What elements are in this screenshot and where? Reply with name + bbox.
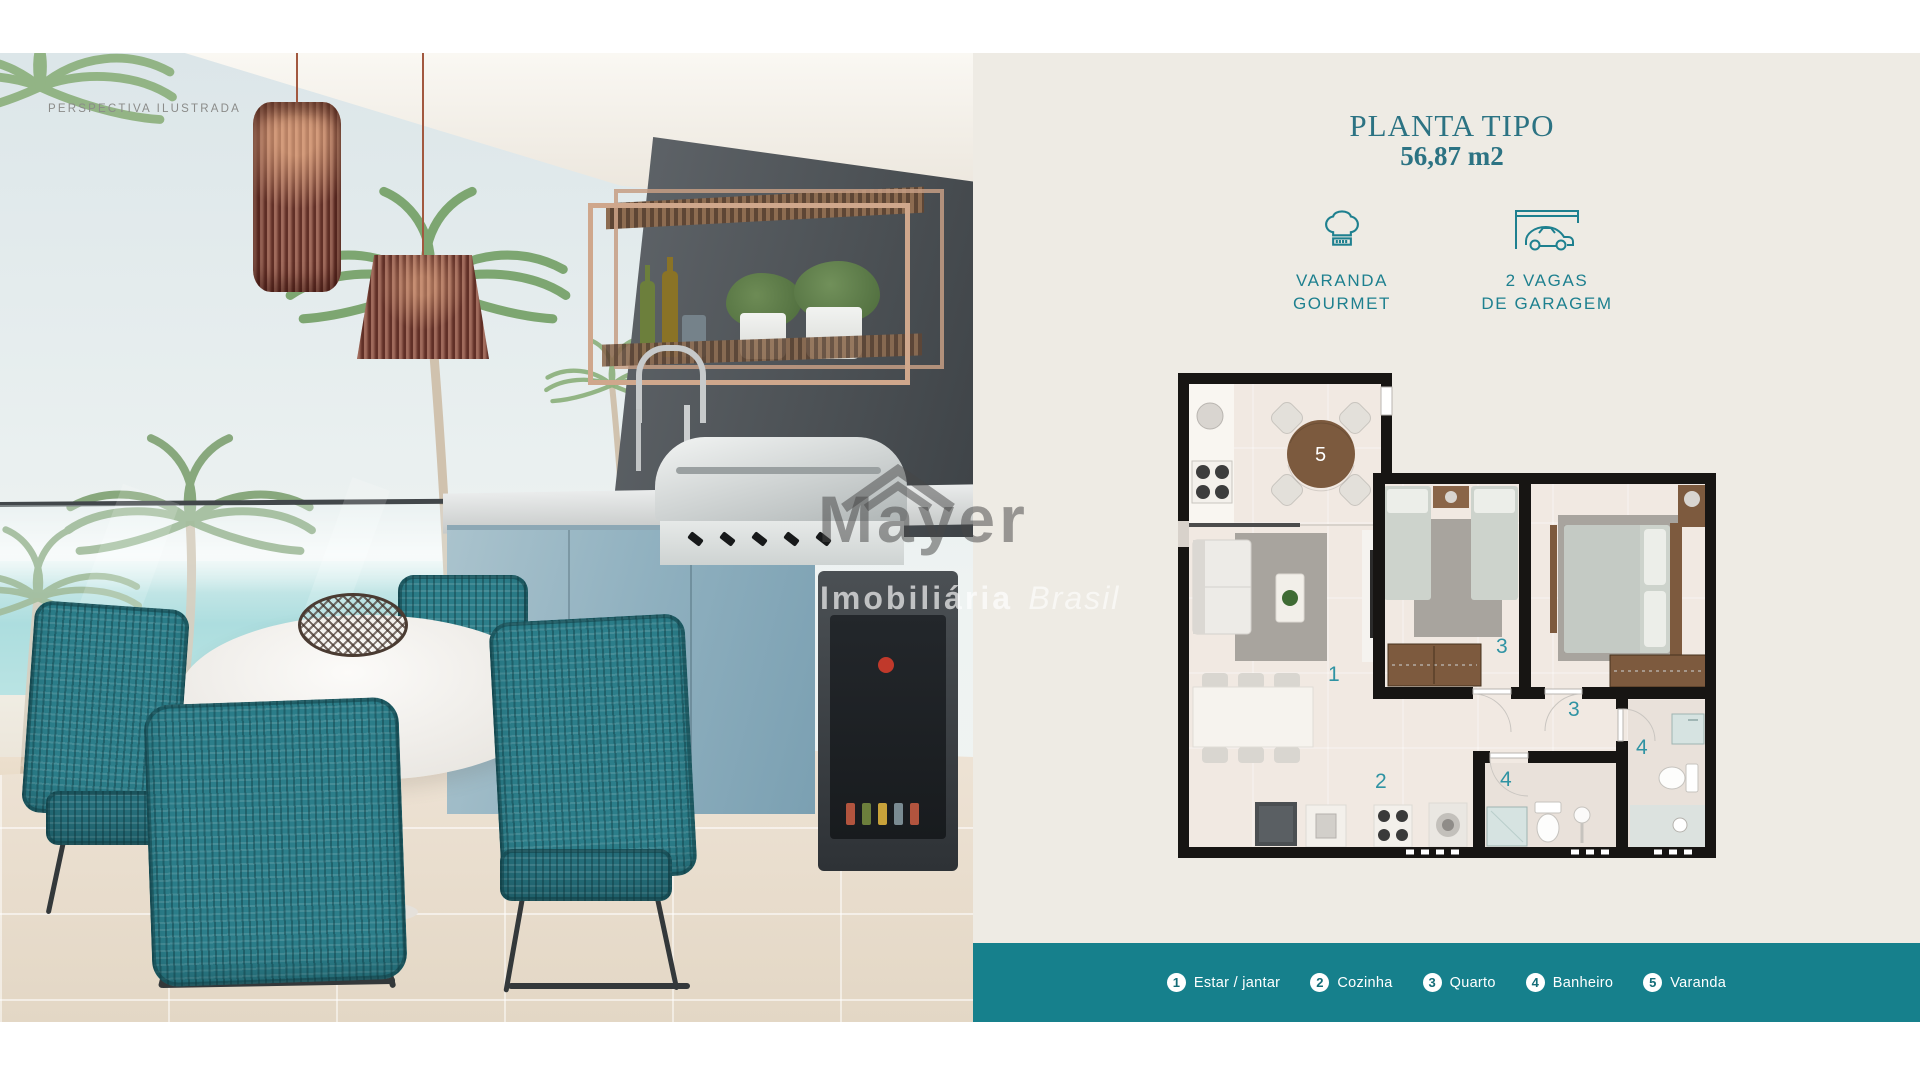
chef-hat-icon	[1316, 203, 1368, 253]
amenity-label: VARANDA GOURMET	[1252, 270, 1432, 316]
legend-label: Cozinha	[1337, 975, 1392, 991]
photo-caption: PERSPECTIVA ILUSTRADA	[48, 103, 241, 115]
vanity	[1672, 714, 1704, 744]
watermark-line2: Imobiliária	[820, 580, 1013, 616]
legend-number-badge: 4	[1526, 973, 1545, 992]
legend-item: 3 Quarto	[1423, 973, 1496, 992]
legend-number-badge: 1	[1167, 973, 1186, 992]
dining-chair	[143, 697, 408, 988]
dining-table	[1193, 687, 1313, 747]
amenity-label-line: VARANDA	[1252, 270, 1432, 293]
plan-outside	[1391, 373, 1716, 473]
watermark-line3: Brasil	[1018, 580, 1121, 616]
lamp-cord	[296, 53, 298, 105]
watermark-tagline: Imobiliária Brasil	[820, 580, 1120, 617]
floor-plan: 1 2 3 3 4 4 5	[1178, 373, 1716, 858]
washer-door-glass	[1442, 819, 1454, 831]
room-number-kitchen: 2	[1375, 770, 1387, 793]
sofa-back	[1193, 540, 1205, 634]
legend-number-badge: 5	[1643, 973, 1662, 992]
pendant-lamp	[253, 102, 341, 292]
bed-pillow	[1644, 591, 1666, 647]
grill-knob	[687, 531, 704, 547]
wall-window	[1178, 521, 1189, 547]
room-number-living: 1	[1328, 663, 1340, 686]
watermark-brand: Mayer	[818, 486, 1029, 552]
varanda-divider-light	[1300, 524, 1383, 526]
toilet-tank	[1535, 802, 1561, 813]
bottle	[878, 803, 887, 825]
entry-door	[1381, 387, 1392, 415]
toilet-tank	[1686, 764, 1698, 792]
tv-panel	[1550, 525, 1557, 633]
legend-label: Banheiro	[1553, 975, 1613, 991]
wall-shelf	[588, 181, 940, 379]
legend-bar: 1 Estar / jantar 2 Cozinha 3 Quarto 4 Ba…	[973, 943, 1920, 1022]
pendant-lamp	[357, 255, 489, 359]
wicker-basket	[298, 593, 408, 657]
kitchen-sink	[1316, 814, 1336, 838]
chair-seat	[500, 849, 672, 901]
bed-blanket	[1564, 525, 1640, 653]
dresser-mirror	[1684, 491, 1700, 507]
dining-chair	[488, 613, 697, 885]
room-number-varanda: 5	[1315, 444, 1326, 466]
legend-item: 5 Varanda	[1643, 973, 1726, 992]
toilet-bowl	[1537, 814, 1559, 842]
legend-number-badge: 3	[1423, 973, 1442, 992]
amenity-label-line: GOURMET	[1252, 293, 1432, 316]
amenity-label: 2 VAGAS DE GARAGEM	[1457, 270, 1637, 316]
floor-drain	[1673, 818, 1687, 832]
room-number-hall: 3	[1568, 698, 1580, 721]
plan-title: PLANTA TIPO	[1202, 108, 1702, 144]
plan-fridge-top	[1259, 806, 1293, 842]
faucet	[636, 345, 706, 423]
bed-pillow	[1387, 489, 1428, 513]
legend-item: 2 Cozinha	[1310, 973, 1392, 992]
bottle	[862, 803, 871, 825]
legend-label: Estar / jantar	[1194, 975, 1280, 991]
legend-label: Varanda	[1670, 975, 1726, 991]
room-number-bath: 4	[1500, 768, 1512, 791]
brochure-page: PERSPECTIVA ILUSTRADA Mayer Imobiliária …	[0, 0, 1920, 1080]
bottle	[894, 803, 903, 825]
plan-area: 56,87 m2	[1202, 141, 1702, 172]
legend-label: Quarto	[1450, 975, 1496, 991]
garage-car-icon	[1508, 203, 1586, 253]
bed-pillow	[1644, 529, 1666, 585]
cooktop	[1374, 805, 1412, 847]
floor-plan-svg: 1 2 3 3 4 4 5	[1178, 373, 1716, 858]
bed-pillow	[1474, 489, 1515, 513]
lamp-cord	[422, 53, 424, 258]
nightstand-lamp	[1445, 491, 1457, 503]
shelf-frame-front	[588, 203, 910, 385]
amenity-garage: 2 VAGAS DE GARAGEM	[1457, 203, 1637, 316]
amenity-label-line: DE GARAGEM	[1457, 293, 1637, 316]
bottle	[910, 803, 919, 825]
legend-item: 4 Banheiro	[1526, 973, 1613, 992]
tv	[1370, 550, 1373, 638]
pedestal-sink	[1574, 807, 1590, 823]
fridge-glass-door	[830, 615, 946, 839]
coffee-table-plant	[1282, 590, 1298, 606]
grill-knob	[783, 531, 800, 547]
room-number-bath: 4	[1636, 736, 1648, 759]
amenity-label-line: 2 VAGAS	[1457, 270, 1637, 293]
watermark: Mayer Imobiliária Brasil	[818, 462, 1118, 627]
varanda-divider	[1188, 523, 1300, 527]
legend-item: 1 Estar / jantar	[1167, 973, 1280, 992]
headboard	[1670, 523, 1682, 655]
grill-knob	[751, 531, 768, 547]
varanda-sink	[1197, 403, 1223, 429]
legend-number-badge: 2	[1310, 973, 1329, 992]
chair-leg	[508, 983, 690, 989]
faucet-spout	[636, 409, 641, 471]
room-number-bedroom: 3	[1496, 635, 1508, 658]
shower-area	[1630, 805, 1706, 847]
toilet-bowl	[1659, 767, 1685, 789]
grill-knob	[719, 531, 736, 547]
bottle	[846, 803, 855, 825]
fridge-logo	[878, 657, 894, 673]
amenity-varanda-gourmet: VARANDA GOURMET	[1252, 203, 1432, 316]
